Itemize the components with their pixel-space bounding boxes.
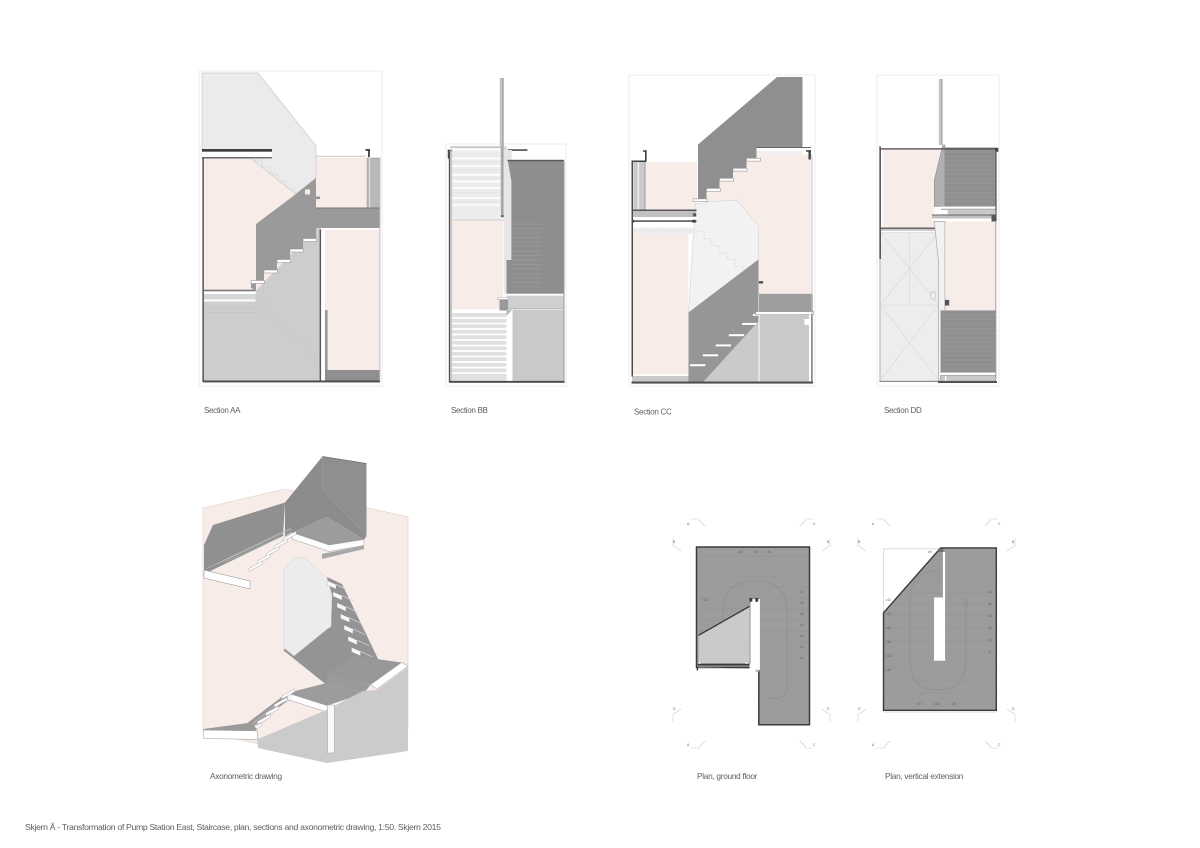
svg-text:c13: c13 <box>886 626 891 630</box>
svg-text:C: C <box>998 522 1001 526</box>
svg-text:c5: c5 <box>800 612 804 616</box>
svg-text:Section DD: Section DD <box>884 406 922 415</box>
svg-text:Axonometric drawing: Axonometric drawing <box>210 771 282 781</box>
svg-text:c2: c2 <box>800 645 804 649</box>
svg-text:Plan, vertical extension: Plan, vertical extension <box>885 771 964 781</box>
svg-text:c14: c14 <box>886 640 891 644</box>
svg-text:c19: c19 <box>951 702 956 706</box>
svg-text:D: D <box>858 707 861 711</box>
svg-text:c10: c10 <box>738 550 743 554</box>
svg-text:c6: c6 <box>988 590 992 594</box>
svg-text:c13: c13 <box>703 598 708 602</box>
svg-text:A: A <box>872 522 875 526</box>
svg-text:B: B <box>827 540 830 544</box>
svg-text:A: A <box>687 743 690 747</box>
svg-text:D: D <box>827 707 830 711</box>
svg-text:A: A <box>687 522 690 526</box>
svg-text:c7: c7 <box>800 590 804 594</box>
svg-text:c2: c2 <box>988 638 992 642</box>
svg-text:c9: c9 <box>928 550 932 554</box>
svg-text:Section CC: Section CC <box>634 408 672 417</box>
svg-text:C: C <box>813 743 816 747</box>
svg-text:B: B <box>858 540 861 544</box>
svg-text:C: C <box>998 743 1001 747</box>
svg-text:c9: c9 <box>754 550 758 554</box>
svg-text:c15: c15 <box>886 654 891 658</box>
svg-text:c4: c4 <box>988 614 992 618</box>
svg-text:A: A <box>872 743 875 747</box>
svg-text:Skjern Å - Transformation of P: Skjern Å - Transformation of Pump Statio… <box>25 822 441 832</box>
svg-text:B: B <box>1012 540 1015 544</box>
svg-text:Section BB: Section BB <box>451 406 488 415</box>
svg-text:c8: c8 <box>767 550 771 554</box>
svg-text:D: D <box>673 707 676 711</box>
svg-text:c3: c3 <box>988 626 992 630</box>
svg-text:c1: c1 <box>800 656 804 660</box>
svg-text:C: C <box>813 522 816 526</box>
svg-text:B: B <box>673 540 676 544</box>
svg-text:c5: c5 <box>988 602 992 606</box>
svg-text:D: D <box>1012 707 1015 711</box>
svg-text:c4: c4 <box>800 623 804 627</box>
svg-text:c17: c17 <box>917 702 922 706</box>
svg-text:c1: c1 <box>988 650 992 654</box>
svg-text:c12: c12 <box>886 612 891 616</box>
svg-text:c3: c3 <box>800 634 804 638</box>
svg-text:Plan, ground floor: Plan, ground floor <box>697 771 758 781</box>
svg-text:c11: c11 <box>886 598 891 602</box>
svg-text:c16: c16 <box>886 668 891 672</box>
svg-text:Section AA: Section AA <box>204 406 241 415</box>
svg-text:c18: c18 <box>934 702 939 706</box>
svg-text:c6: c6 <box>800 601 804 605</box>
